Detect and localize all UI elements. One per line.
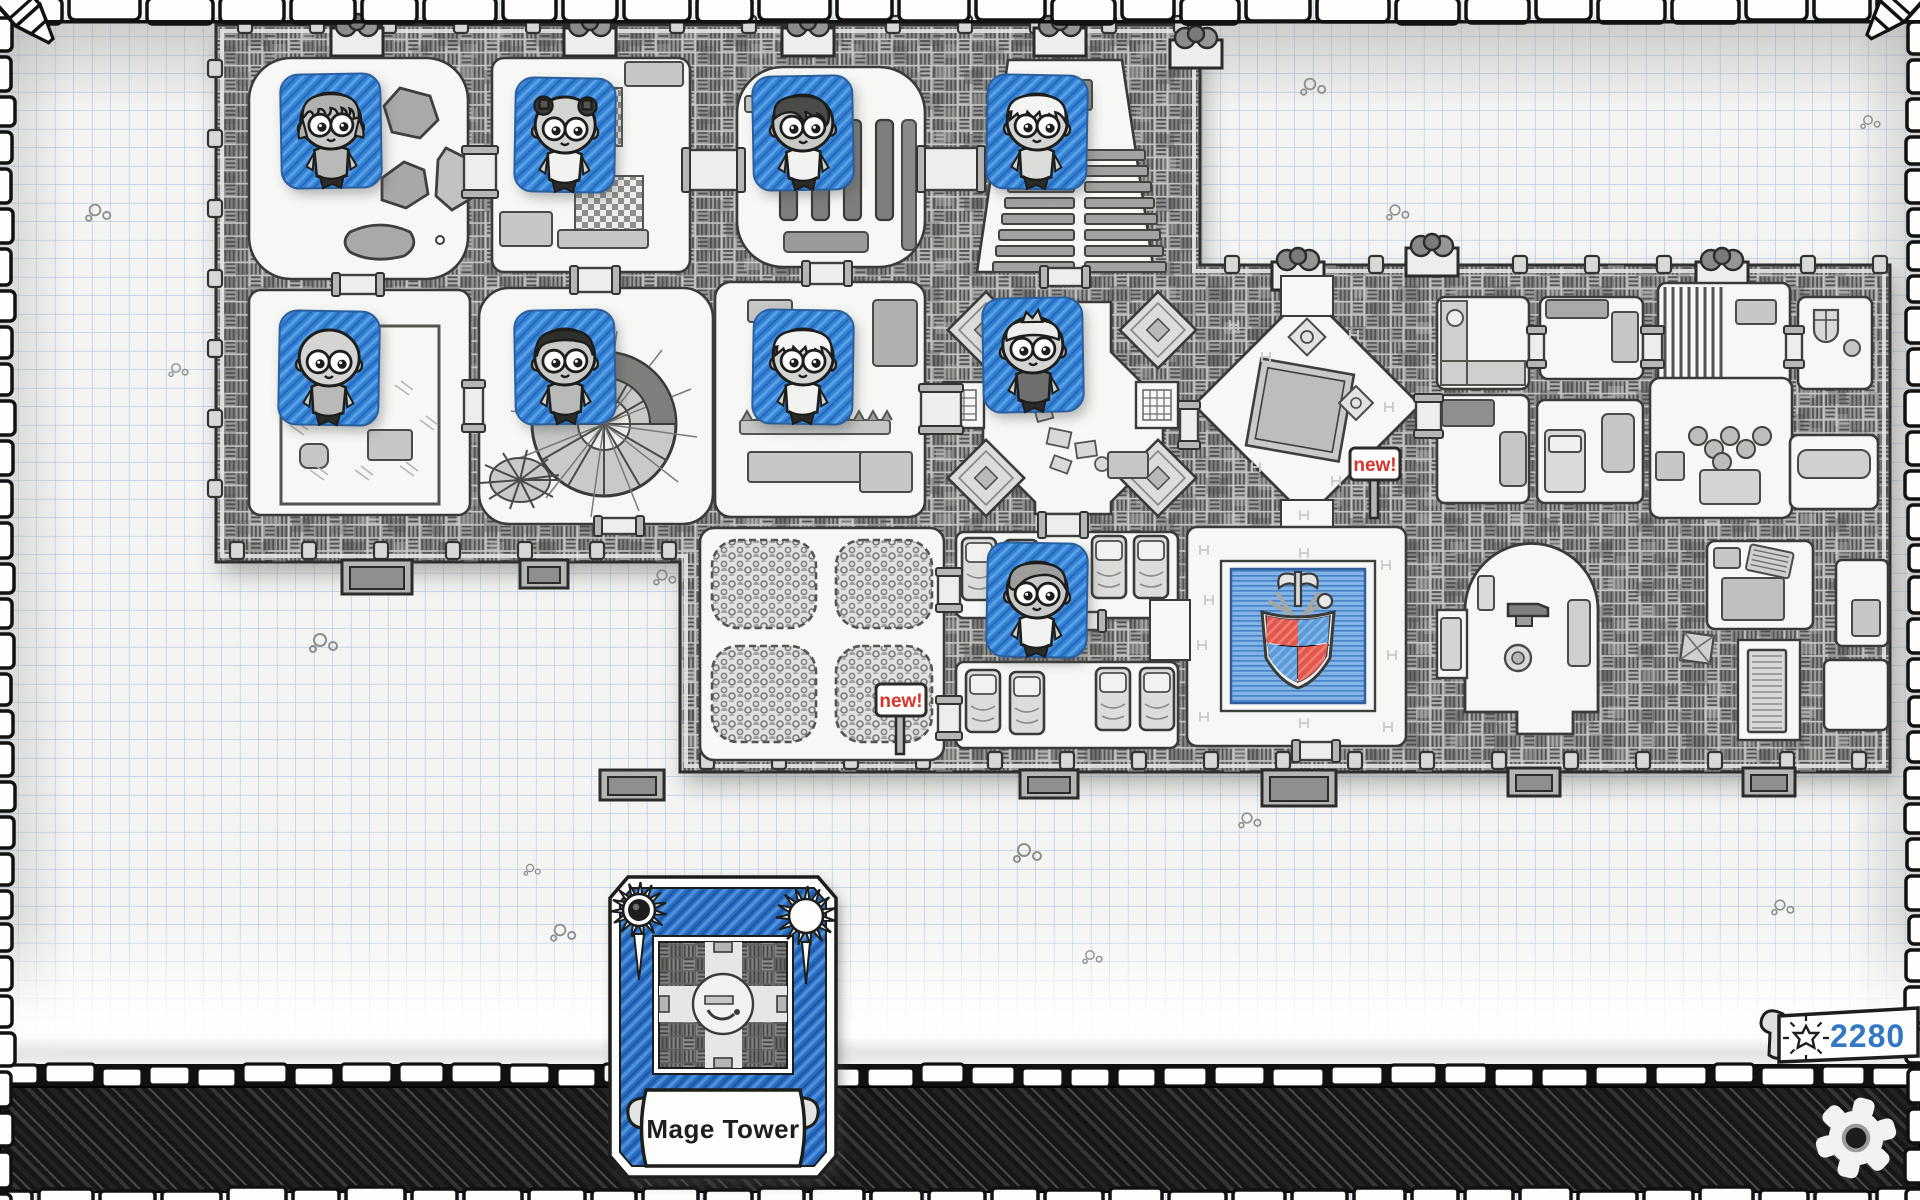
svg-text:new!: new! [1353, 455, 1396, 476]
svg-text:Mage Tower: Mage Tower [646, 1114, 799, 1144]
svg-text:new!: new! [879, 691, 922, 712]
svg-text:2280: 2280 [1830, 1018, 1905, 1054]
